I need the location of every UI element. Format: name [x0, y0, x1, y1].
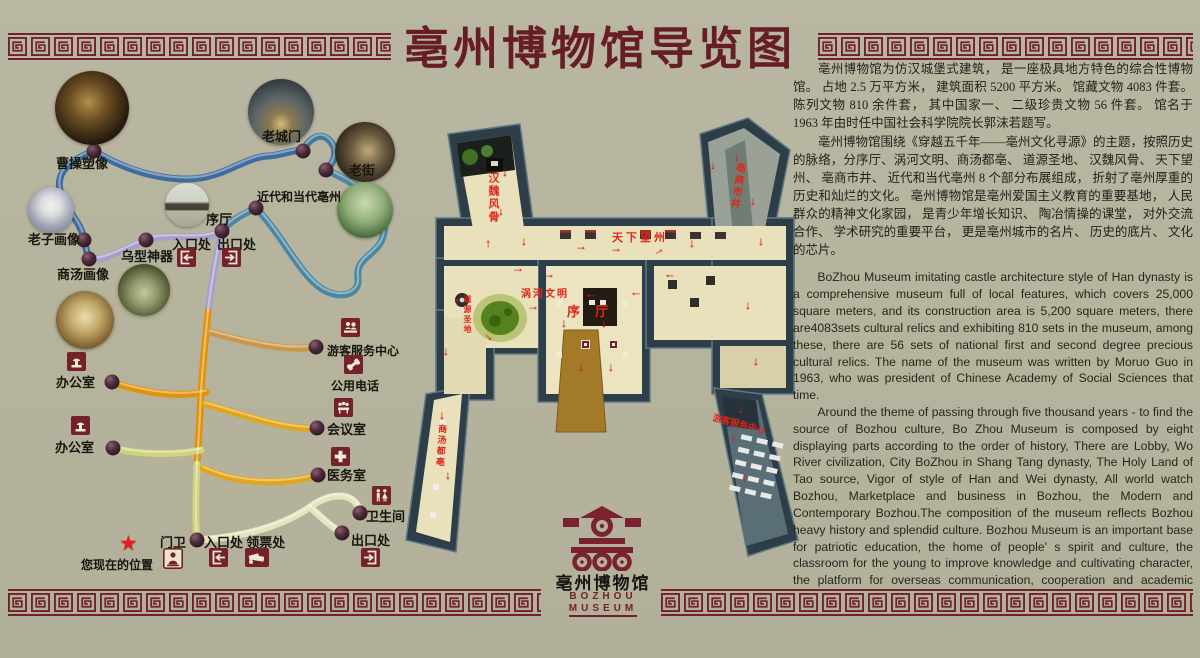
label-lobby: 序厅 — [206, 209, 232, 228]
description-column: 亳州博物馆为仿汉城堡式建筑， 是一座极具地方特色的综合性博物馆。 占地 2.5 … — [793, 60, 1193, 588]
photo-shangtang-portrait — [56, 291, 114, 349]
hall-label-shangtang: 商汤都亳 — [434, 424, 446, 469]
route-arrow: → — [749, 196, 761, 208]
meander-unit — [818, 37, 837, 56]
route-arrow: → — [497, 206, 509, 218]
page-title: 亳州博物馆导览图 — [404, 12, 796, 77]
meander-unit — [376, 593, 395, 612]
meander-unit — [54, 37, 73, 56]
meander-unit — [914, 593, 933, 612]
border-meander-top-left — [8, 33, 391, 60]
meander-unit — [1052, 593, 1071, 612]
meander-unit — [1144, 593, 1163, 612]
meander-unit — [1094, 37, 1113, 56]
meander-unit — [399, 593, 418, 612]
meander-unit — [887, 37, 906, 56]
label-service-center: 游客服务中心 — [327, 342, 399, 359]
gate-guard-icon — [163, 548, 183, 569]
route-arrow: → — [480, 238, 492, 250]
museum-guide-board: 亳州博物馆导览图 — [0, 0, 1200, 658]
label-modern-bozhou: 近代和当代亳州 — [257, 188, 341, 205]
route-arrow: → — [449, 296, 461, 308]
route-arrow: → — [520, 236, 532, 248]
meander-unit — [100, 593, 119, 612]
label-meeting-room: 会议室 — [327, 419, 366, 438]
meander-unit — [376, 37, 391, 56]
meander-unit — [1071, 37, 1090, 56]
route-arrow: → — [501, 167, 513, 179]
route-arrow: → — [709, 160, 721, 172]
office-a-icon — [67, 352, 86, 371]
ticket-office-icon — [245, 548, 269, 567]
route-arrow: → — [688, 238, 700, 250]
route-arrow: → — [630, 290, 642, 302]
border-meander-bottom-left — [8, 589, 541, 616]
exit-bottom-icon — [361, 548, 380, 567]
photo-caocao-statue — [55, 71, 129, 145]
label-office-b: 办公室 — [55, 437, 94, 456]
label-toilet: 卫生间 — [366, 506, 405, 525]
meander-unit — [123, 593, 142, 612]
route-arrow: → — [610, 242, 622, 254]
meander-unit — [868, 593, 887, 612]
meander-unit — [169, 593, 188, 612]
logo-english-line2: MUSEUM — [569, 603, 637, 618]
meander-unit — [468, 593, 487, 612]
route-arrow: → — [444, 470, 456, 482]
museum-seal-logo — [557, 505, 647, 571]
service-center-icon — [341, 318, 360, 337]
meander-unit — [284, 37, 303, 56]
label-exit-bottom: 出口处 — [351, 530, 390, 549]
intro-english-1: BoZhou Museum imitating castle architect… — [793, 269, 1193, 404]
route-arrow: → — [438, 410, 450, 422]
exit-icon — [222, 248, 241, 267]
meander-unit — [77, 37, 96, 56]
meander-unit — [307, 593, 326, 612]
meander-unit — [445, 593, 464, 612]
phone-icon — [344, 355, 363, 374]
meander-unit — [330, 37, 349, 56]
meander-unit — [514, 593, 533, 612]
meander-unit — [864, 37, 883, 56]
intro-english-2: Around the theme of passing through five… — [793, 404, 1193, 588]
route-arrow: → — [482, 328, 499, 345]
meander-unit — [1117, 37, 1136, 56]
toilet-icon — [372, 486, 391, 505]
meander-unit — [146, 593, 165, 612]
photo-laozi-portrait — [28, 187, 74, 233]
meander-unit — [822, 593, 841, 612]
meander-unit — [353, 593, 372, 612]
meander-unit — [730, 593, 749, 612]
meander-unit — [684, 593, 703, 612]
hall-label-boshang: 亳商市井 — [728, 162, 745, 211]
meander-unit — [910, 37, 929, 56]
route-arrow: → — [543, 268, 555, 280]
meander-unit — [215, 593, 234, 612]
meander-unit — [753, 593, 772, 612]
meander-unit — [1002, 37, 1021, 56]
route-arrow: → — [744, 300, 756, 312]
meander-unit — [1186, 37, 1193, 56]
meander-unit — [77, 593, 96, 612]
meander-unit — [238, 37, 257, 56]
route-arrow: → — [527, 300, 539, 312]
route-arrow: → — [512, 262, 524, 274]
meander-unit — [933, 37, 952, 56]
meander-unit — [31, 593, 50, 612]
label-caocao: 曹操塑像 — [56, 153, 108, 172]
meander-unit — [1167, 593, 1186, 612]
border-meander-top-right — [818, 33, 1193, 60]
intro-chinese-2: 亳州博物馆围绕《穿越五千年——亳州文化寻源》的主题，按照历史的脉络，分序厅、涡河… — [793, 133, 1193, 260]
meander-unit — [1029, 593, 1048, 612]
meander-unit — [169, 37, 188, 56]
entrance-icon — [177, 248, 196, 267]
meander-unit — [192, 37, 211, 56]
meander-unit — [1140, 37, 1159, 56]
meander-unit — [192, 593, 211, 612]
medical-cross-icon — [331, 447, 350, 466]
meander-unit — [891, 593, 910, 612]
route-arrow: → — [600, 318, 612, 330]
photo-lobby-hall — [165, 183, 209, 227]
office-b-icon — [71, 416, 90, 435]
entrance-bottom-icon — [209, 548, 228, 567]
meander-unit — [1190, 593, 1193, 612]
label-shangtang: 商汤画像 — [57, 264, 109, 283]
label-old-street: 老街 — [349, 160, 375, 179]
meander-unit — [261, 37, 280, 56]
hall-label-lobby: 序 厅 — [567, 305, 614, 318]
meander-unit — [845, 593, 864, 612]
meander-unit — [799, 593, 818, 612]
route-arrow: → — [585, 292, 597, 304]
meander-unit — [422, 593, 441, 612]
route-arrow: → — [664, 272, 676, 284]
label-bird-artifact: 乌型神器 — [121, 246, 173, 265]
meander-unit — [1025, 37, 1044, 56]
label-old-city-gate: 老城门 — [262, 126, 301, 145]
meander-unit — [353, 37, 372, 56]
meander-unit — [146, 37, 165, 56]
photo-bird-artifact — [118, 264, 170, 316]
hall-label-daoyuan: 道源圣地 — [463, 295, 471, 335]
meander-unit — [8, 37, 27, 56]
intro-chinese-1: 亳州博物馆为仿汉城堡式建筑， 是一座极具地方特色的综合性博物馆。 占地 2.5 … — [793, 60, 1193, 133]
label-laozi: 老子画像 — [28, 229, 80, 248]
meander-unit — [31, 37, 50, 56]
meander-unit — [960, 593, 979, 612]
route-arrow: → — [740, 471, 754, 485]
route-arrow: → — [752, 356, 764, 368]
meander-unit — [491, 593, 510, 612]
meander-unit — [776, 593, 795, 612]
border-meander-bottom-right — [661, 589, 1193, 616]
route-arrow: → — [575, 240, 587, 252]
meander-unit — [983, 593, 1002, 612]
logo-english-line1: BOZHOU — [541, 591, 665, 603]
logo-english-name: BOZHOU MUSEUM — [541, 591, 665, 617]
meander-unit — [937, 593, 956, 612]
meander-unit — [54, 593, 73, 612]
route-arrow: → — [560, 318, 572, 330]
floorplan-exit-mini-icon — [609, 340, 618, 349]
photo-modern-bozhou — [337, 182, 393, 238]
meander-unit — [123, 37, 142, 56]
meander-unit — [956, 37, 975, 56]
label-you-are-here: 您现在的位置 — [81, 556, 153, 573]
meander-unit — [100, 37, 119, 56]
meander-unit — [979, 37, 998, 56]
floorplan-entrance-mini-icon — [581, 340, 590, 349]
route-arrow: → — [757, 236, 769, 248]
meander-unit — [841, 37, 860, 56]
meander-unit — [261, 593, 280, 612]
route-arrow: → — [728, 430, 743, 445]
meander-unit — [1098, 593, 1117, 612]
label-office-a: 办公室 — [56, 372, 95, 391]
meander-unit — [284, 593, 303, 612]
route-arrow: → — [607, 362, 619, 374]
route-arrow: → — [733, 152, 745, 164]
label-public-phone: 公用电话 — [331, 377, 379, 394]
meander-unit — [707, 593, 726, 612]
meander-unit — [1075, 593, 1094, 612]
meander-unit — [307, 37, 326, 56]
meeting-room-icon — [334, 398, 353, 417]
meander-unit — [8, 593, 27, 612]
route-arrow: → — [736, 403, 750, 417]
meander-unit — [1121, 593, 1140, 612]
meander-unit — [1006, 593, 1025, 612]
meander-unit — [1048, 37, 1067, 56]
meander-unit — [215, 37, 234, 56]
route-arrow: → — [577, 362, 589, 374]
current-location-star: ★ — [119, 531, 138, 556]
label-medical-room: 医务室 — [327, 465, 366, 484]
meander-unit — [238, 593, 257, 612]
meander-unit — [330, 593, 349, 612]
route-arrow: → — [650, 242, 666, 258]
route-arrow: → — [442, 346, 454, 358]
meander-unit — [1163, 37, 1182, 56]
